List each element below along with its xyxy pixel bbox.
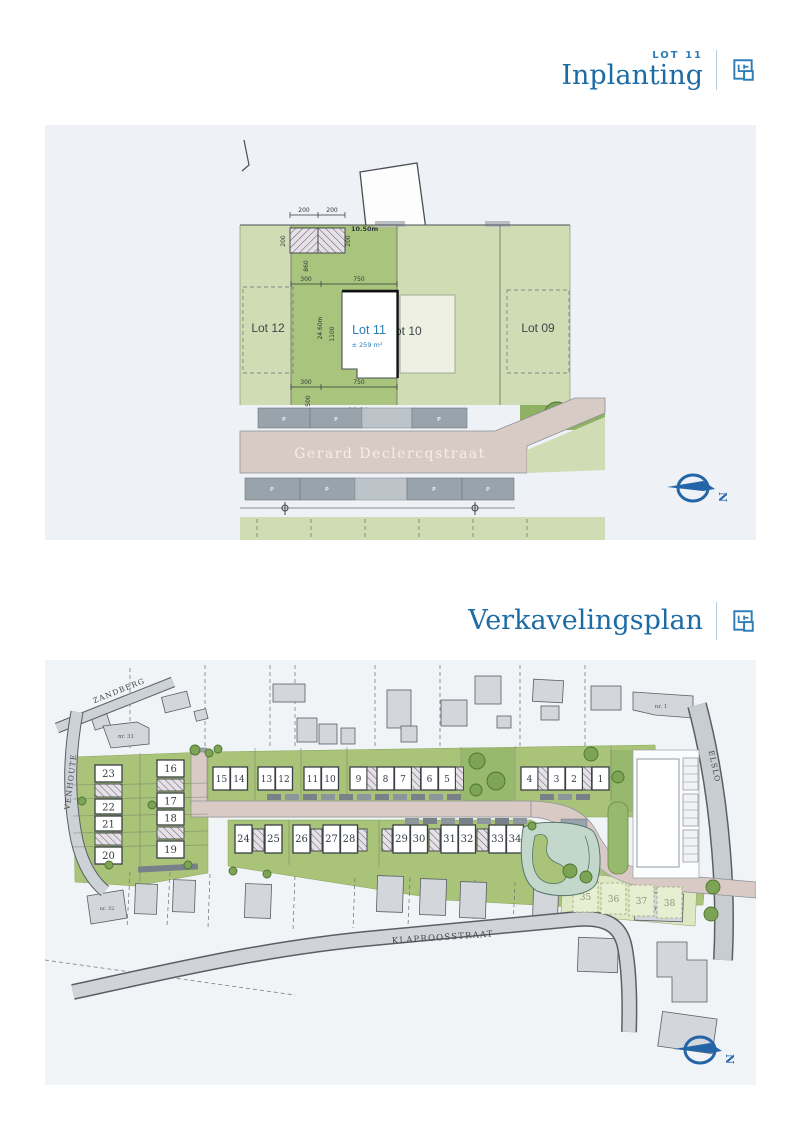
- parking-strip-south: P P P P: [245, 478, 514, 500]
- dim-1100: 1100: [329, 326, 336, 341]
- lot-33: 33: [491, 834, 504, 845]
- parking-p: P: [486, 487, 490, 493]
- lot-34: 34: [509, 834, 522, 845]
- lot-35: 35: [580, 893, 592, 903]
- garage-zone-hatch-right: [318, 228, 345, 253]
- lot11-building[interactable]: Lot 11 ± 259 m²: [342, 291, 398, 378]
- dim-top-w1: 200: [298, 207, 310, 214]
- lot12-label: Lot 12: [251, 321, 285, 335]
- dim-750-top: 750: [353, 276, 365, 283]
- floorplan-icon[interactable]: [730, 608, 756, 634]
- lot-26: 26: [295, 834, 308, 845]
- verkaveling-header: Verkavelingsplan: [468, 602, 756, 640]
- lot-row-north[interactable]: 15 14 13 12 11 10 9 8 7 6 5 4 3 2 1: [213, 767, 609, 790]
- parking-p: P: [325, 487, 329, 493]
- compass-north-letter: N: [716, 492, 729, 502]
- lot-31: 31: [443, 834, 456, 845]
- lot-18: 18: [164, 814, 177, 825]
- lot-6: 6: [427, 775, 433, 785]
- lot-14: 14: [233, 775, 245, 785]
- parking-p: P: [334, 417, 338, 423]
- lot-4: 4: [527, 775, 533, 785]
- floorplan-icon[interactable]: [730, 57, 756, 83]
- page-title-verkaveling: Verkavelingsplan: [468, 607, 703, 635]
- page-title: Inplanting: [561, 62, 703, 90]
- lot-12: 12: [278, 775, 289, 785]
- dim-top-w2: 200: [326, 207, 338, 214]
- house-nr1-label: nr. 1: [655, 704, 668, 710]
- dim-860: 860: [303, 260, 310, 272]
- street-name: Gerard Declercqstraat: [294, 446, 486, 462]
- lot-29: 29: [395, 834, 408, 845]
- lot-22: 22: [102, 803, 115, 814]
- header-divider: [716, 602, 717, 640]
- compass-north-letter: N: [723, 1054, 736, 1064]
- parking-p: P: [437, 417, 441, 423]
- lot-10: 10: [324, 775, 336, 785]
- lot-5: 5: [444, 775, 450, 785]
- lot-27: 27: [325, 834, 338, 845]
- house-nr31-label: nr. 31: [118, 734, 134, 740]
- lot11-area: ± 259 m²: [352, 341, 383, 349]
- lot-2: 2: [571, 775, 577, 785]
- lot-row-south[interactable]: 24 25 26 27 28 29 30 31 32 33 34: [235, 825, 534, 853]
- lot-30: 30: [413, 834, 426, 845]
- lot-19: 19: [164, 845, 177, 856]
- lot-1: 1: [598, 775, 604, 785]
- inplanting-site-plan: 200 200 10.50m 200 200 860 300 750 24.60…: [45, 125, 756, 540]
- dim-750-bot: 750: [353, 379, 365, 386]
- lot09-label: Lot 09: [521, 321, 555, 335]
- lot-37: 37: [636, 897, 648, 907]
- lot-28: 28: [343, 834, 356, 845]
- garage-zone-hatch-left: [290, 228, 318, 253]
- house-nr32-label: nr. 32: [100, 906, 115, 912]
- dim-500: 500: [305, 395, 312, 407]
- parking-p: P: [270, 487, 274, 493]
- dim-300-bot: 300: [300, 379, 312, 386]
- lot-3: 3: [554, 775, 560, 785]
- inplanting-header-text: LOT 11 Inplanting: [561, 50, 703, 90]
- parking-p: P: [282, 417, 286, 423]
- lot-7: 7: [400, 775, 406, 785]
- lot-36: 36: [608, 895, 620, 905]
- dim-side-l: 200: [280, 235, 287, 247]
- lot-21: 21: [102, 820, 115, 831]
- lot-17: 17: [164, 797, 177, 808]
- dim-depth-left: 24.60m: [317, 316, 324, 339]
- lot-16: 16: [164, 764, 177, 775]
- inplanting-header: LOT 11 Inplanting: [561, 50, 756, 90]
- lot-23: 23: [102, 769, 115, 780]
- lot-11: 11: [307, 775, 318, 785]
- lot11-label: Lot 11: [352, 323, 386, 337]
- dim-300-top: 300: [300, 276, 312, 283]
- lot-25: 25: [267, 834, 280, 845]
- lot-15: 15: [216, 775, 228, 785]
- subdivision-plan: nr. 1 nr. 31 nr. 32 nr. 22: [45, 660, 756, 1085]
- lot-9: 9: [356, 775, 362, 785]
- header-divider: [716, 50, 717, 90]
- dim-side-r: 200: [345, 235, 352, 247]
- lot-24: 24: [237, 834, 250, 845]
- lot-8: 8: [383, 775, 389, 785]
- lot-13: 13: [261, 775, 273, 785]
- dim-top-front: 10.50m: [351, 225, 379, 233]
- lot-38: 38: [664, 899, 676, 909]
- lot-32: 32: [461, 834, 474, 845]
- pond: [521, 819, 600, 896]
- parking-p: P: [432, 487, 436, 493]
- lot-20: 20: [102, 851, 115, 862]
- verkaveling-header-text: Verkavelingsplan: [468, 607, 703, 635]
